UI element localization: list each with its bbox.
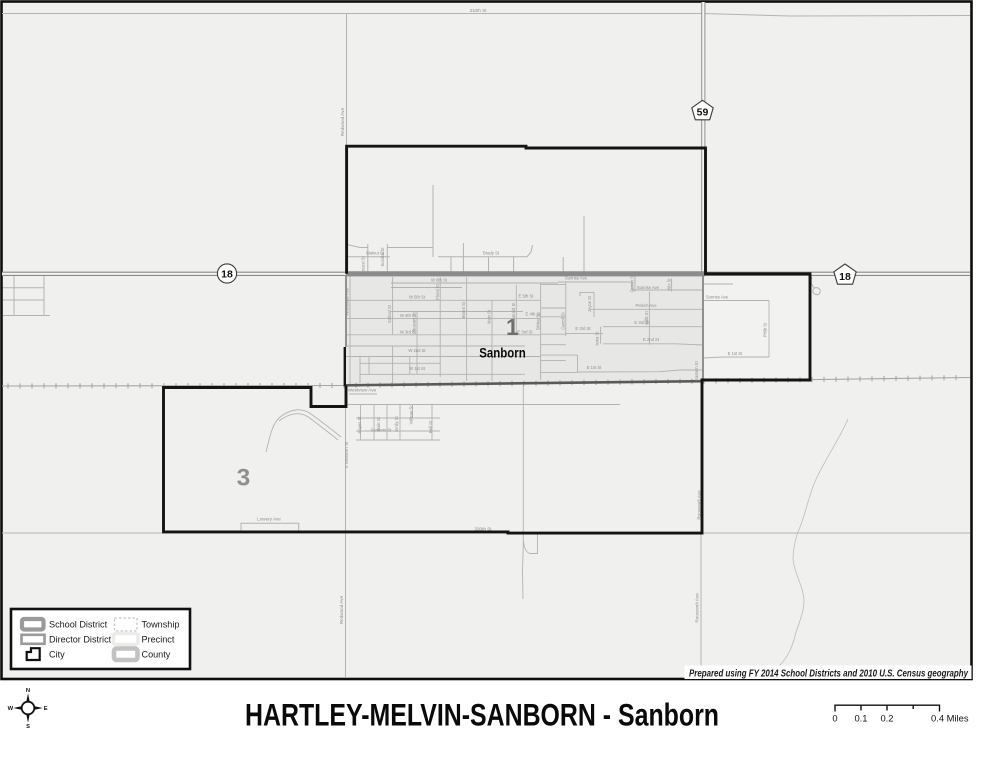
svg-text:Sunrise Ave: Sunrise Ave xyxy=(565,276,588,281)
svg-text:School District: School District xyxy=(49,620,108,630)
svg-text:Harrold St: Harrold St xyxy=(511,302,516,322)
svg-text:Center St: Center St xyxy=(630,274,635,293)
svg-text:Boren St: Boren St xyxy=(461,301,466,318)
svg-text:0.2: 0.2 xyxy=(880,713,893,724)
svg-text:W 2nd St: W 2nd St xyxy=(408,348,426,353)
svg-text:E 2nd St: E 2nd St xyxy=(643,337,660,342)
svg-text:310th St: 310th St xyxy=(469,8,487,13)
svg-text:Sunrise Ave: Sunrise Ave xyxy=(637,285,660,290)
svg-text:Emily St: Emily St xyxy=(394,415,399,431)
svg-text:W: W xyxy=(8,706,14,712)
svg-text:Phlib St: Phlib St xyxy=(763,322,768,337)
svg-text:18: 18 xyxy=(221,268,233,280)
svg-text:18: 18 xyxy=(839,271,851,283)
svg-text:Redwood Ave: Redwood Ave xyxy=(339,595,344,624)
svg-text:E 5th St: E 5th St xyxy=(519,294,535,299)
svg-text:E 3rd St: E 3rd St xyxy=(517,330,533,335)
svg-text:Wix St: Wix St xyxy=(667,278,672,291)
svg-text:Main St: Main St xyxy=(487,309,492,324)
svg-text:Roosevelt Ave: Roosevelt Ave xyxy=(695,593,700,623)
svg-text:Eastern St: Eastern St xyxy=(694,360,699,380)
svg-text:S Western St: S Western St xyxy=(344,441,349,469)
svg-text:Locust St: Locust St xyxy=(361,255,366,273)
svg-text:3: 3 xyxy=(237,464,251,491)
svg-text:E: E xyxy=(44,706,48,712)
svg-text:Redwood Ave: Redwood Ave xyxy=(340,107,345,136)
svg-text:Sundial St: Sundial St xyxy=(380,247,385,267)
svg-text:N: N xyxy=(26,688,30,694)
svg-text:Petrich Ave: Petrich Ave xyxy=(635,303,657,308)
svg-text:S: S xyxy=(26,724,30,730)
svg-text:W 1st St: W 1st St xyxy=(409,366,426,371)
svg-text:County: County xyxy=(142,650,171,660)
svg-text:Pleasant St: Pleasant St xyxy=(412,311,417,333)
svg-text:Carroll St: Carroll St xyxy=(561,311,566,329)
svg-text:W 5th St: W 5th St xyxy=(409,295,426,300)
svg-text:Roosevelt Ave: Roosevelt Ave xyxy=(697,490,702,520)
svg-text:Iowa St: Iowa St xyxy=(595,331,600,346)
svg-text:Joyce St: Joyce St xyxy=(587,295,592,312)
svg-text:E 1st St: E 1st St xyxy=(587,365,602,370)
svg-text:Precinct: Precinct xyxy=(142,635,175,645)
svg-text:HARTLEY-MELVIN-SANBORN - Sanbo: HARTLEY-MELVIN-SANBORN - Sanborn xyxy=(245,697,719,733)
svg-text:Westview Ave: Westview Ave xyxy=(348,388,377,393)
svg-text:Bell St: Bell St xyxy=(428,420,433,433)
svg-text:0: 0 xyxy=(832,713,837,724)
svg-text:59: 59 xyxy=(697,107,709,119)
svg-text:Valleau St: Valleau St xyxy=(409,405,414,425)
svg-text:Hayes St: Hayes St xyxy=(357,416,362,434)
svg-text:Mills St: Mills St xyxy=(644,310,649,324)
svg-text:Floral St: Floral St xyxy=(435,283,440,299)
svg-text:Sunrise Ave: Sunrise Ave xyxy=(706,295,729,300)
svg-text:E 1st St: E 1st St xyxy=(728,351,743,356)
svg-text:Milwaukee Ave: Milwaukee Ave xyxy=(345,287,350,316)
svg-text:E 3rd St: E 3rd St xyxy=(575,326,591,331)
svg-text:Prepared using FY 2014 School: Prepared using FY 2014 School Districts … xyxy=(689,669,969,680)
svg-text:Sibley St: Sibley St xyxy=(536,313,541,330)
svg-text:Sanborn: Sanborn xyxy=(479,345,526,361)
svg-text:Lowery Ave: Lowery Ave xyxy=(257,517,281,522)
svg-text:Brady St: Brady St xyxy=(483,251,500,256)
svg-text:Director District: Director District xyxy=(49,635,112,645)
svg-text:330th St: 330th St xyxy=(474,527,492,532)
svg-text:0.1: 0.1 xyxy=(854,713,867,724)
svg-text:Sanborn St: Sanborn St xyxy=(371,428,393,433)
svg-text:Township: Township xyxy=(142,620,180,630)
svg-text:City: City xyxy=(49,650,65,660)
svg-text:0.4 Miles: 0.4 Miles xyxy=(931,713,969,724)
svg-text:School St: School St xyxy=(387,304,392,323)
svg-text:W 6th St: W 6th St xyxy=(431,278,448,283)
